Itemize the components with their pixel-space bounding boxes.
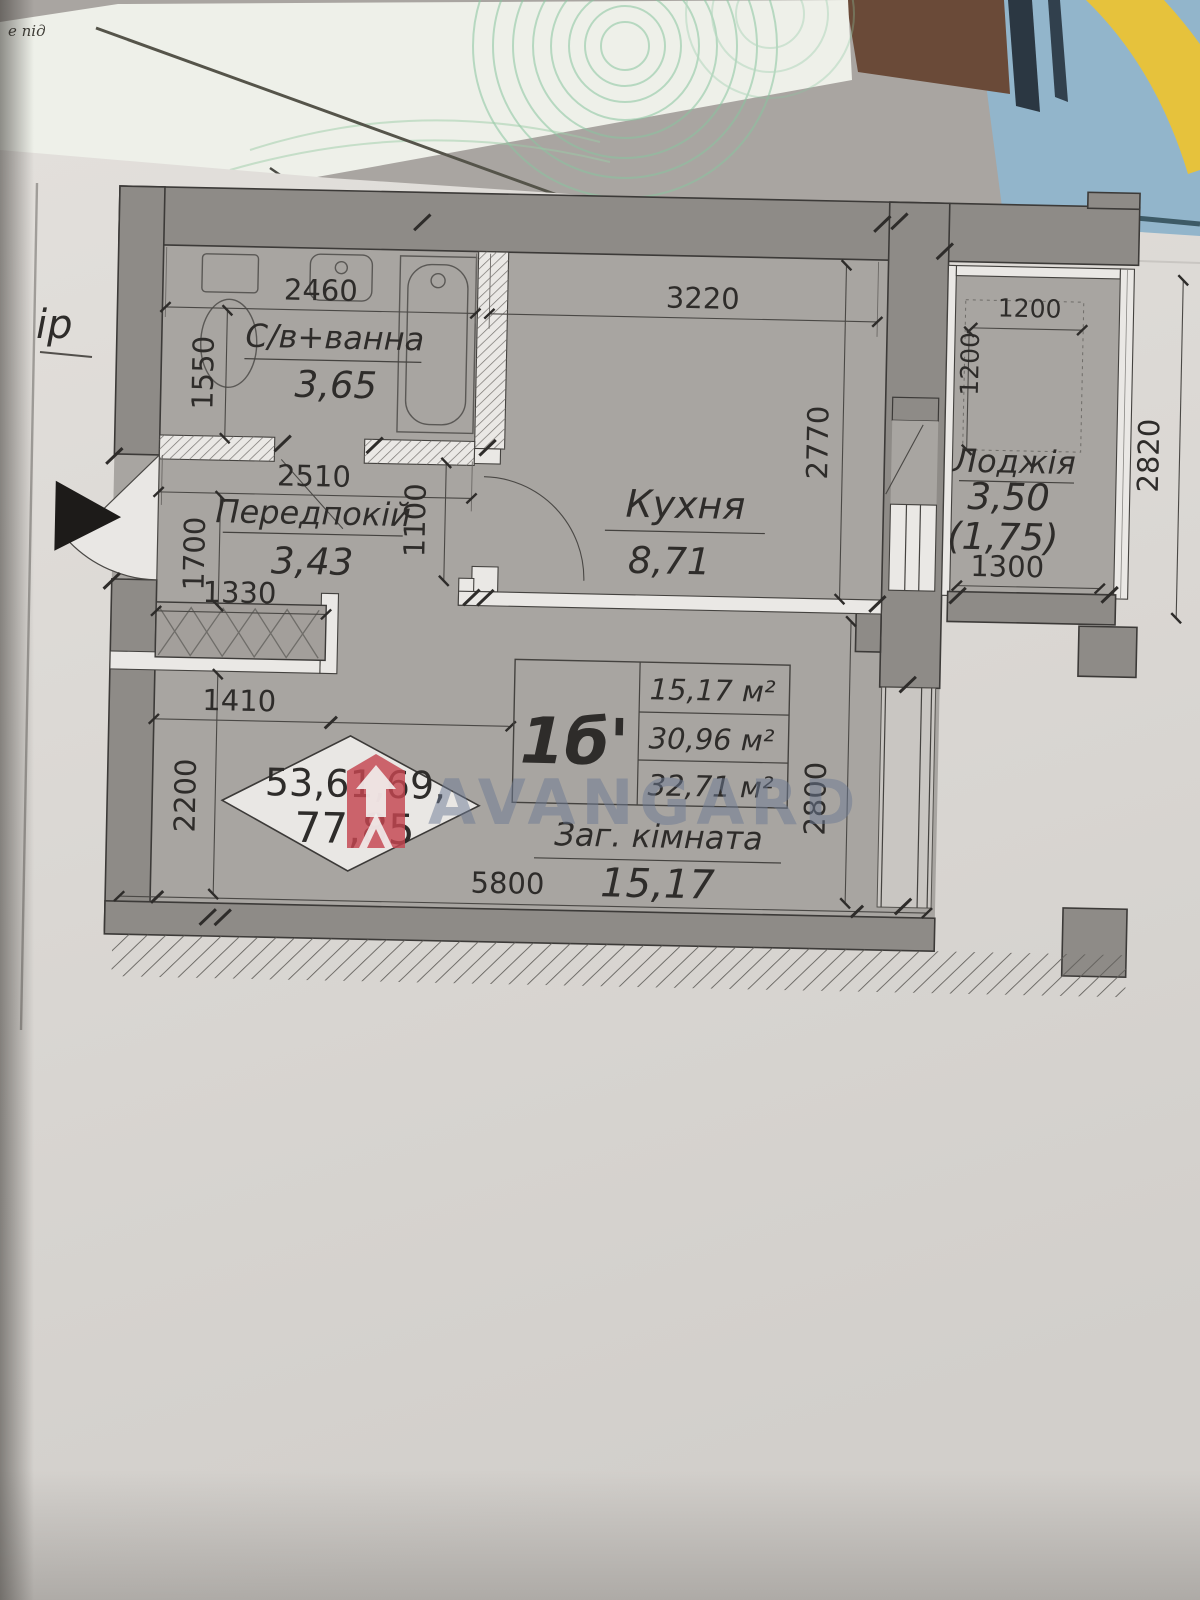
- room-living-area: 15,17: [600, 860, 716, 908]
- room-bathroom-area: 3,65: [294, 363, 377, 408]
- balcony-door-opening: [891, 420, 939, 505]
- room-hall-label: Передпокій: [215, 492, 411, 534]
- dim-loggia-width: 1300: [970, 549, 1045, 585]
- pillar-below-loggia: [1078, 626, 1137, 677]
- wall-left-lower: [104, 579, 156, 932]
- room-hall-area: 3,43: [271, 539, 354, 584]
- dim-loggia-height: 2820: [1131, 418, 1167, 493]
- balcony-door-jamb: [892, 397, 938, 421]
- dim-hall-door: 1100: [397, 483, 433, 558]
- margin-text: ір: [36, 302, 73, 348]
- dim-kitchen-width: 3220: [666, 280, 741, 316]
- avangard-shield-logo-icon: [347, 754, 405, 848]
- dim-bath-width: 2460: [284, 272, 359, 308]
- hatch: [159, 435, 274, 461]
- dim-living-left: 2200: [167, 758, 203, 833]
- dim-closet-inner: 1330: [202, 575, 277, 611]
- dim-hall-width: 2510: [277, 458, 352, 494]
- bath-vent-wall-hatch: [475, 252, 509, 450]
- dim-loggia-inner-w: 1200: [998, 293, 1062, 323]
- floor-plan-svg: е під ір: [0, 0, 1200, 1600]
- bottom-shadow: [0, 1470, 1200, 1600]
- room-bathroom-label: С/в+ванна: [245, 317, 424, 359]
- room-kitchen-label: Кухня: [625, 482, 746, 528]
- dim-living-width: 5800: [470, 865, 545, 901]
- left-shadow: [0, 0, 34, 1600]
- living-window: [877, 687, 936, 908]
- room-kitchen-area: 8,71: [628, 539, 711, 584]
- dim-closet-outer: 1410: [202, 683, 277, 719]
- wall-top-notch: [1088, 192, 1140, 209]
- dim-bath-height: 1550: [185, 336, 221, 411]
- photo-of-floor-plan: е під ір: [0, 0, 1200, 1600]
- dim-kitchen-height: 2770: [800, 405, 836, 480]
- hall-kitchen-wall-upper: [474, 448, 500, 464]
- watermark-text: AVANGARD: [428, 766, 862, 839]
- hatch: [364, 439, 474, 465]
- kitchen-loggia-window: [889, 504, 937, 591]
- loggia-bottom-slab: [947, 591, 1116, 625]
- unit-area-living: 15,17 м²: [649, 672, 776, 709]
- hall-kitchen-wall-lower: [472, 566, 499, 592]
- room-loggia-area: 3,50: [967, 475, 1050, 520]
- unit-area-reduced: 30,96 м²: [648, 721, 775, 758]
- wall-left-upper: [114, 186, 165, 455]
- dim-loggia-inner-d: 1200: [955, 332, 985, 396]
